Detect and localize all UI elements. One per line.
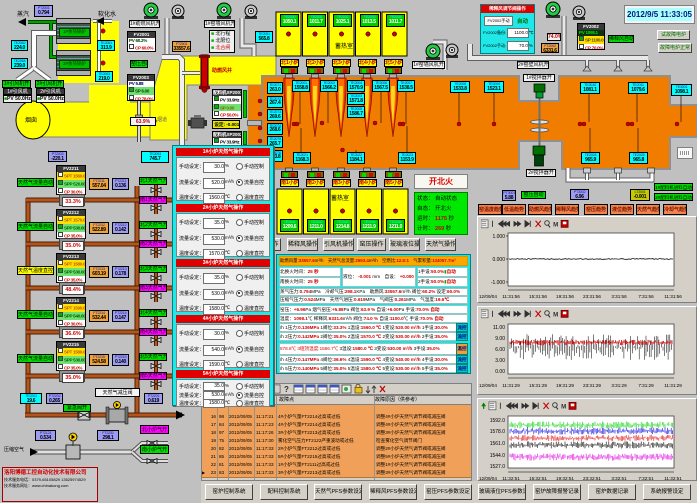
svg-text:0.000: 0.000 <box>492 257 505 263</box>
svg-text:1527.0: 1527.0 <box>490 464 506 470</box>
svg-text:1578.0: 1578.0 <box>490 429 506 435</box>
svg-text:15:31:56: 15:31:56 <box>529 294 547 299</box>
svg-text:19:31:56: 19:31:56 <box>556 294 574 299</box>
svg-text:12/09/04: 12/09/04 <box>479 294 497 299</box>
svg-text:1.000: 1.000 <box>492 234 505 240</box>
svg-text:M: M <box>553 311 558 318</box>
svg-text:3.00: 3.00 <box>495 358 505 364</box>
svg-text:0.00: 0.00 <box>495 369 505 375</box>
svg-text:11:31:56: 11:31:56 <box>502 294 520 299</box>
svg-text:7:31:29: 7:31:29 <box>638 383 654 388</box>
svg-text:11:31:56: 11:31:56 <box>664 294 682 299</box>
svg-text:-1.000: -1.000 <box>491 280 505 286</box>
svg-text:11.00: 11.00 <box>493 325 505 331</box>
svg-text:1544.0: 1544.0 <box>490 453 506 459</box>
svg-text:3:31:56: 3:31:56 <box>611 294 627 299</box>
svg-text:M: M <box>561 403 566 410</box>
svg-text:?: ? <box>284 385 289 394</box>
svg-text:蓄热室: 蓄热室 <box>331 194 349 202</box>
svg-text:蓄热室: 蓄热室 <box>335 42 353 50</box>
svg-text:12/09/04: 12/09/04 <box>479 383 497 388</box>
svg-text:3:31:29: 3:31:29 <box>611 383 627 388</box>
svg-text:7:31:56: 7:31:56 <box>638 294 654 299</box>
svg-text:23:31:56: 23:31:56 <box>583 294 601 299</box>
svg-text:15:31:29: 15:31:29 <box>529 383 547 388</box>
svg-text:1592.0: 1592.0 <box>490 418 506 424</box>
svg-text:6.00: 6.00 <box>495 347 505 353</box>
svg-text:19:31:29: 19:31:29 <box>556 383 574 388</box>
svg-text:M: M <box>553 221 558 228</box>
svg-text:烟囱: 烟囱 <box>25 116 37 124</box>
svg-text:23:31:29: 23:31:29 <box>583 383 601 388</box>
svg-text:11:31:29: 11:31:29 <box>502 383 520 388</box>
svg-text:11:31:29: 11:31:29 <box>664 383 682 388</box>
svg-text:9.00: 9.00 <box>495 336 505 342</box>
svg-text:1561.0: 1561.0 <box>490 441 506 447</box>
